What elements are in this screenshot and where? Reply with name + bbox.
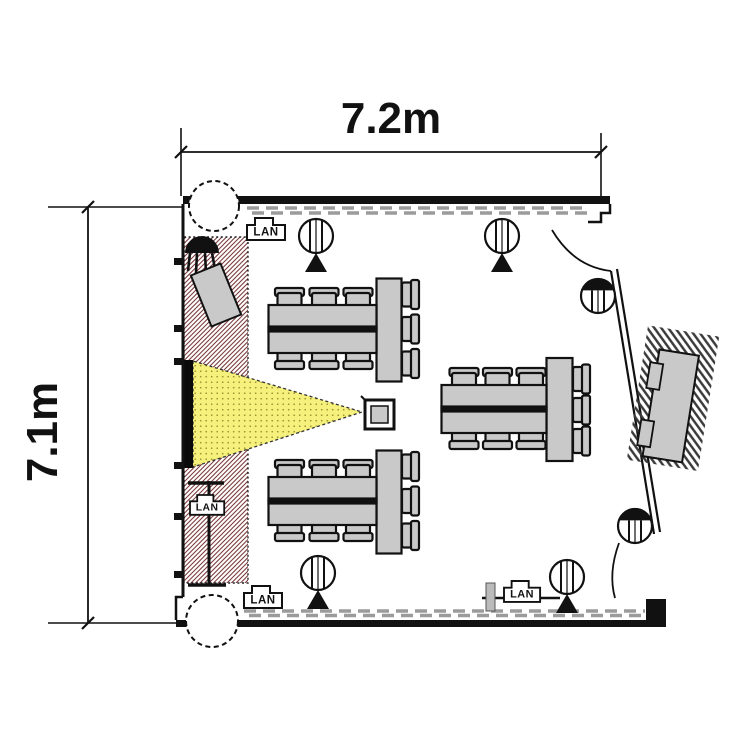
chair	[517, 368, 546, 386]
column-top-left	[189, 181, 239, 231]
chair	[344, 460, 373, 478]
chair	[450, 368, 479, 386]
chair	[483, 368, 512, 386]
speaker-icon	[299, 219, 333, 272]
table-group-top	[269, 279, 420, 382]
chair	[402, 521, 419, 550]
column-bottom-left	[186, 595, 238, 647]
chair	[483, 432, 512, 449]
chair	[402, 280, 419, 309]
chair	[573, 396, 590, 425]
top-wall	[183, 196, 610, 204]
lan-label: LAN	[250, 595, 275, 607]
door-swing-top	[552, 230, 611, 271]
speaker-icon	[485, 219, 519, 272]
end-table	[547, 358, 573, 461]
cabinet-handle	[646, 362, 663, 390]
end-table	[377, 451, 402, 554]
chair	[573, 427, 590, 456]
chair	[344, 352, 373, 369]
chair	[275, 460, 304, 478]
chair	[310, 524, 339, 541]
dome-speaker-icon	[618, 509, 652, 543]
chair	[275, 352, 304, 369]
speaker-icon	[550, 560, 584, 613]
chair	[310, 288, 339, 306]
width-dimension-label: 7.2m	[341, 94, 441, 143]
floor-plan-canvas: 7.2m 7.1m LAN	[0, 0, 750, 750]
projection-screen	[184, 360, 193, 468]
table-divider	[442, 407, 547, 412]
projector-beam	[193, 361, 362, 467]
chair	[573, 365, 590, 394]
chair	[402, 315, 419, 344]
table-divider	[269, 499, 377, 504]
speaker-icon	[301, 556, 335, 609]
projector	[361, 396, 394, 429]
table-divider	[269, 327, 377, 332]
chair	[450, 432, 479, 449]
height-dimension-label: 7.1m	[18, 382, 67, 482]
chair	[402, 452, 419, 481]
table-group-right	[442, 358, 591, 461]
lan-label: LAN	[196, 502, 219, 513]
bottom-left-wall-step	[176, 597, 183, 620]
floor-plan-drawing: 7.2m 7.1m LAN	[0, 0, 750, 750]
lan-label: LAN	[253, 227, 278, 239]
dimension-height	[48, 201, 183, 629]
table-group-bottom	[269, 451, 420, 554]
chair	[402, 487, 419, 516]
cabinet-handle	[637, 419, 654, 447]
chair	[310, 352, 339, 369]
dome-speaker-icon	[581, 279, 615, 313]
chair	[402, 349, 419, 378]
top-right-wall-step	[588, 204, 610, 222]
chair	[517, 432, 546, 449]
chair	[344, 288, 373, 306]
chair	[344, 524, 373, 541]
lan-outlet-top: LAN	[247, 218, 285, 240]
lan-outlet-bottom: LAN	[244, 586, 282, 608]
chair	[275, 524, 304, 541]
lan-floor-outlet-right: LAN	[482, 581, 560, 611]
chair	[275, 288, 304, 306]
end-table	[377, 279, 402, 382]
door-swing-bottom	[612, 543, 619, 598]
chair	[310, 460, 339, 478]
lan-label: LAN	[510, 589, 534, 601]
outside-cabinet	[627, 325, 719, 471]
